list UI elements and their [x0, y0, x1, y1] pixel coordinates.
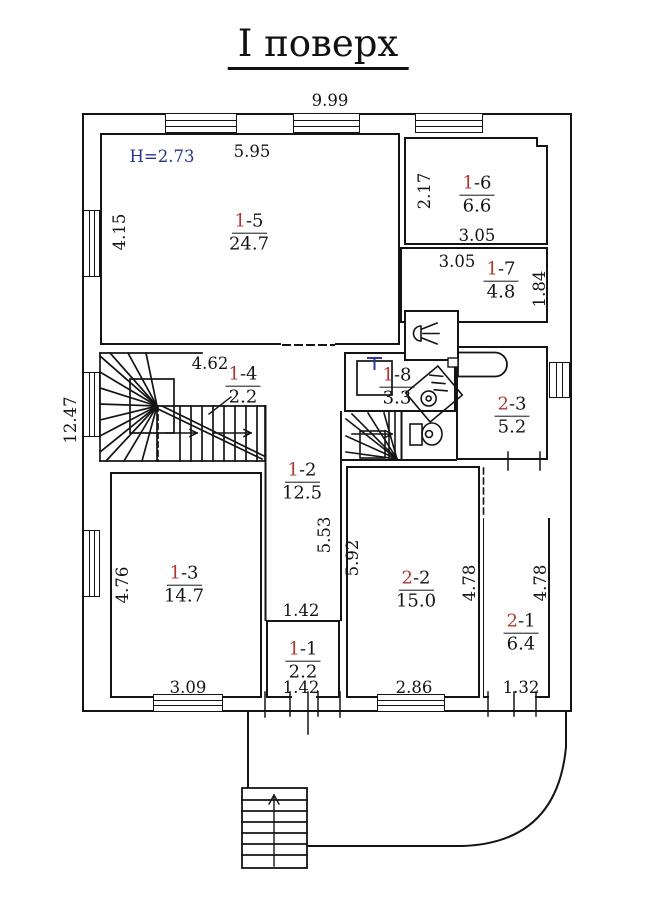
room-number: 2-2	[398, 569, 433, 591]
room-area: 3.3	[380, 389, 415, 409]
room-number: 1-8	[380, 366, 415, 388]
room-number: 1-7	[484, 260, 519, 282]
plan-linework	[0, 0, 659, 900]
floor-plan-page: І поверх	[0, 0, 659, 900]
room-label-1-4: 1-4 2.2	[226, 365, 261, 408]
room-area: 6.4	[504, 635, 539, 655]
lower-staircase	[346, 412, 397, 460]
room-label-1-8: 1-8 3.3	[380, 366, 415, 409]
room-area: 5.2	[495, 418, 530, 438]
room-area: 6.6	[460, 197, 495, 217]
ceiling-height-note: H=2.73	[130, 149, 195, 166]
dim-room-1-3-width: 3.09	[170, 680, 207, 697]
room-label-1-2: 1-2 12.5	[282, 461, 322, 504]
room-area: 24.7	[229, 235, 269, 255]
room-label-1-3: 1-3 14.7	[164, 564, 204, 607]
exterior-stairs	[242, 788, 307, 868]
dim-left-height: 12.47	[63, 396, 80, 443]
room-number: 1-2	[284, 461, 319, 483]
room-area: 2.2	[286, 663, 321, 683]
room-label-1-6: 1-6 6.6	[460, 174, 495, 217]
room-area: 12.5	[282, 484, 322, 504]
dim-room-2-1-height-right: 4.78	[533, 565, 550, 602]
bathtub-icon	[448, 353, 507, 377]
room-number: 2-3	[495, 395, 530, 417]
dim-room-1-3-height: 4.76	[115, 567, 132, 604]
dim-room-2-2-height: 5.92	[345, 540, 362, 577]
dim-corridor-height: 5.53	[317, 517, 334, 554]
room-label-1-7: 1-7 4.8	[484, 260, 519, 303]
dim-room-1-5-height: 4.15	[112, 214, 129, 251]
dim-room-2-1-width: 1.32	[503, 680, 540, 697]
room-label-2-1: 2-1 6.4	[504, 612, 539, 655]
dim-room-1-7-height: 1.84	[532, 271, 549, 308]
room-label-1-5: 1-5 24.7	[229, 212, 269, 255]
dim-room-1-7-width: 3.05	[439, 254, 476, 271]
dim-room-1-5-width: 5.95	[234, 144, 271, 161]
page-title: І поверх	[228, 22, 409, 70]
room-number: 2-1	[504, 612, 539, 634]
room-label-2-2: 2-2 15.0	[396, 569, 436, 612]
room-area: 14.7	[164, 587, 204, 607]
dim-hall-width: 4.62	[192, 356, 229, 373]
room-number: 1-5	[231, 212, 266, 234]
dim-top-width: 9.99	[312, 93, 349, 110]
room-label-1-1: 1-1 2.2	[286, 640, 321, 683]
room-area: 2.2	[226, 388, 261, 408]
dim-room-2-1-height-left: 4.78	[462, 565, 479, 602]
room-number: 1-6	[460, 174, 495, 196]
dim-room-1-6-width: 3.05	[459, 228, 496, 245]
room-area: 15.0	[396, 592, 436, 612]
room-label-2-3: 2-3 5.2	[495, 395, 530, 438]
toilet-icon	[410, 423, 442, 445]
dim-room-2-2-width: 2.86	[396, 680, 433, 697]
room-number: 1-3	[166, 564, 201, 586]
dim-room-1-1-width-top: 1.42	[283, 603, 320, 620]
dim-room-1-6-height: 2.17	[417, 173, 434, 210]
room-area: 4.8	[484, 283, 519, 303]
room-number: 1-1	[286, 640, 321, 662]
shower-head-icon	[414, 323, 440, 344]
room-number: 1-4	[226, 365, 261, 387]
